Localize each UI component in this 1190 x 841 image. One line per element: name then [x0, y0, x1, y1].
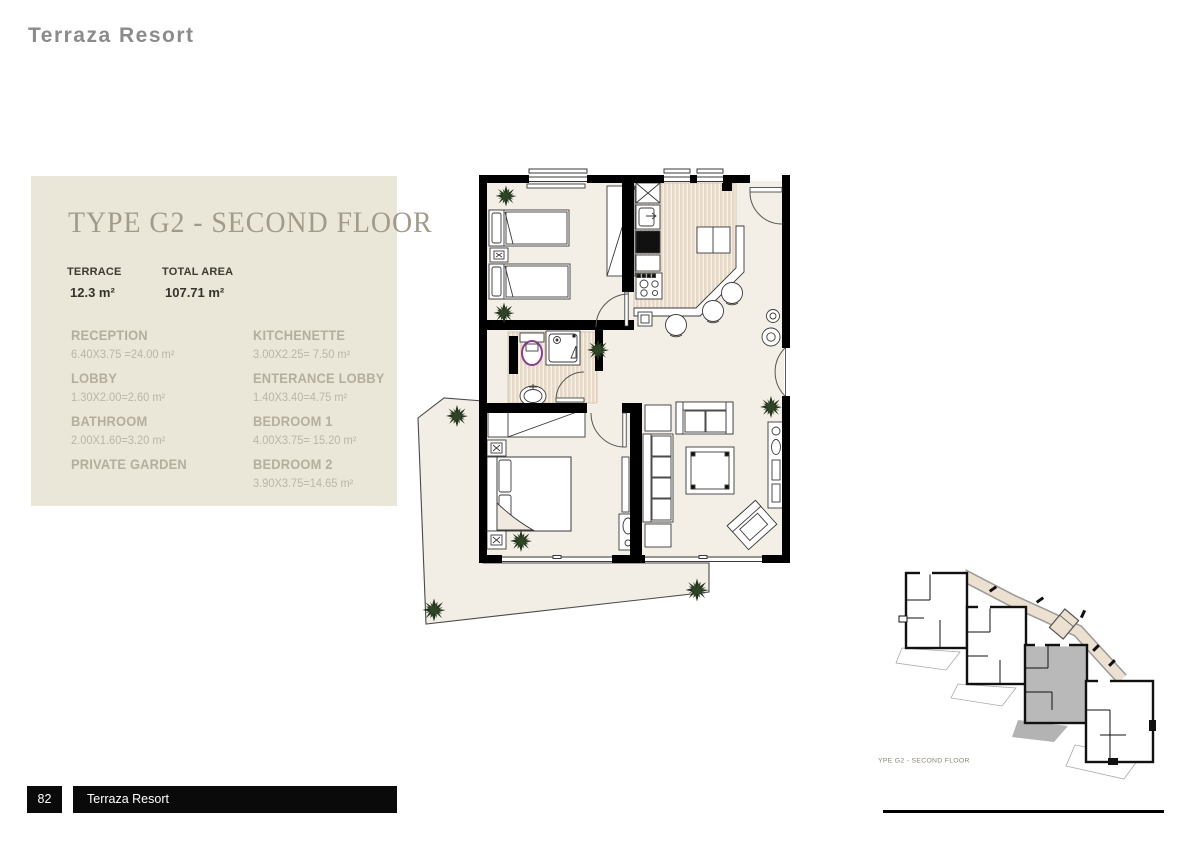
twin-bed-2	[489, 264, 570, 299]
room-bedroom-2: BEDROOM 2 3.90X3.75=14.65 m²	[253, 456, 393, 492]
site-unit-2	[967, 606, 1026, 685]
room-dims: 3.00X2.25= 7.50 m²	[253, 349, 350, 361]
nightstand-bedroom1	[487, 531, 506, 549]
room-list-left: RECEPTION 6.40X3.75 =24.00 m² LOBBY 1.30…	[71, 327, 246, 497]
floor-plan	[412, 160, 802, 640]
side-table	[645, 524, 671, 547]
room-name: PRIVATE GARDEN	[71, 456, 187, 472]
double-bed	[487, 457, 571, 531]
room-dims: 1.30X2.00=2.60 m²	[71, 392, 165, 404]
room-name: ENTERANCE LOBBY	[253, 370, 385, 386]
kitchen-sink	[636, 205, 660, 229]
coffee-table	[686, 447, 734, 494]
nightstand-bedroom2	[490, 248, 508, 262]
room-private-garden: PRIVATE GARDEN	[71, 456, 246, 490]
room-name: BEDROOM 2	[253, 456, 333, 472]
site-unit-1	[899, 572, 967, 649]
room-name: KITCHENETTE	[253, 327, 345, 343]
terrace-value: 12.3 m²	[70, 285, 122, 300]
kitchen-counter-dark	[636, 231, 660, 253]
total-area-stat: TOTAL AREA 107.71 m²	[162, 266, 233, 300]
footer-title-bar: Terraza Resort	[73, 786, 397, 813]
kitchen-cabinet	[697, 227, 730, 253]
room-bedroom-1: BEDROOM 1 4.00X3.75= 15.20 m²	[253, 413, 393, 449]
room-name: BATHROOM	[71, 413, 147, 429]
info-panel: TYPE G2 - SECOND FLOOR TERRACE 12.3 m² T…	[31, 176, 397, 506]
room-dims: 6.40X3.75 =24.00 m²	[71, 349, 174, 361]
room-enterance-lobby: ENTERANCE LOBBY 1.40X3.40=4.75 m²	[253, 370, 393, 406]
room-reception: RECEPTION 6.40X3.75 =24.00 m²	[71, 327, 246, 363]
toilet	[520, 333, 544, 365]
sofa-two-seater	[676, 402, 733, 434]
site-unit-4	[1086, 680, 1156, 766]
twin-bed-1	[489, 210, 569, 246]
room-dims: 2.00X1.60=3.20 m²	[71, 435, 165, 447]
media-console	[768, 422, 784, 508]
terrace-stat: TERRACE 12.3 m²	[67, 266, 122, 300]
terrace-label: TERRACE	[67, 266, 122, 278]
room-dims: 1.40X3.40=4.75 m²	[253, 392, 347, 404]
site-plan-caption: YPE G2 - SECOND FLOOR	[878, 757, 970, 764]
kitchen-fridge	[636, 183, 660, 203]
room-dims: 3.90X3.75=14.65 m²	[253, 478, 353, 490]
room-list-right: KITCHENETTE 3.00X2.25= 7.50 m² ENTERANCE…	[253, 327, 393, 499]
plan-type-title: TYPE G2 - SECOND FLOOR	[68, 206, 433, 240]
total-area-value: 107.71 m²	[165, 285, 233, 300]
nightstand-bedroom1	[487, 440, 506, 456]
total-area-label: TOTAL AREA	[162, 266, 233, 278]
page-number: 82	[27, 786, 62, 813]
kitchen-trash-unit	[638, 312, 652, 326]
sofa-chaise	[643, 434, 673, 522]
floor-plan-drawing	[412, 160, 802, 640]
room-bathroom: BATHROOM 2.00X1.60=3.20 m²	[71, 413, 246, 449]
page-title: Terraza Resort	[28, 24, 195, 48]
kitchen-stove	[636, 273, 662, 299]
bottom-rule	[883, 810, 1164, 813]
room-name: RECEPTION	[71, 327, 148, 343]
room-name: BEDROOM 1	[253, 413, 333, 429]
shower	[546, 331, 580, 365]
room-dims: 4.00X3.75= 15.20 m²	[253, 435, 356, 447]
side-table	[645, 405, 671, 431]
window-sill-unit	[527, 184, 585, 188]
room-name: LOBBY	[71, 370, 117, 386]
room-lobby: LOBBY 1.30X2.00=2.60 m²	[71, 370, 246, 406]
kitchen-counter	[636, 255, 660, 271]
room-kitchenette: KITCHENETTE 3.00X2.25= 7.50 m²	[253, 327, 393, 363]
